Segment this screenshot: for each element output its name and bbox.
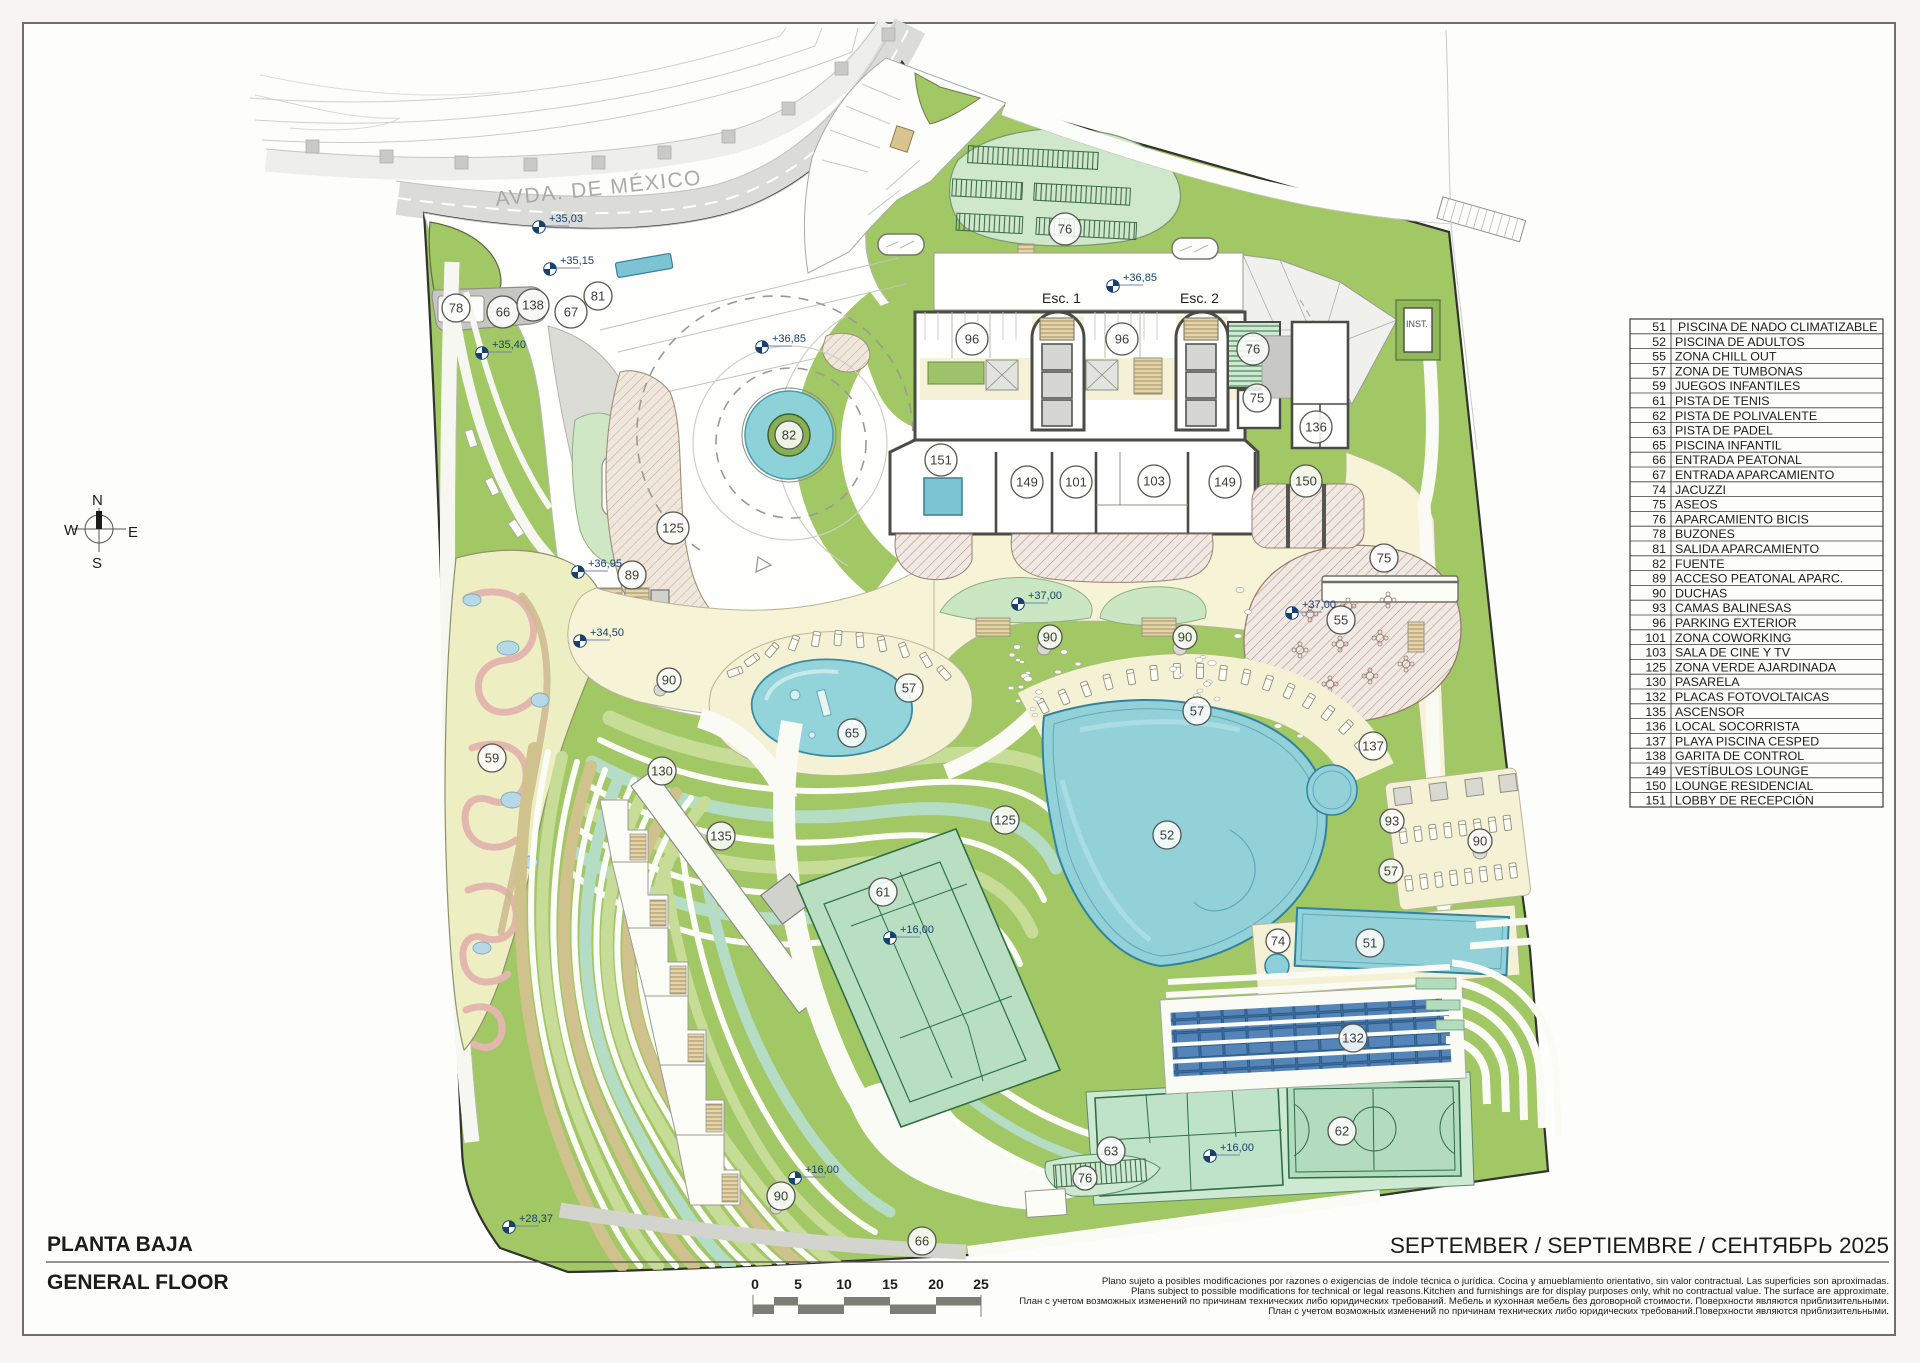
svg-text:LOCAL SOCORRISTA: LOCAL SOCORRISTA [1675, 720, 1800, 734]
svg-text:ZONA DE TUMBONAS: ZONA DE TUMBONAS [1675, 364, 1803, 378]
svg-text:15: 15 [882, 1276, 898, 1292]
svg-text:FUENTE: FUENTE [1675, 557, 1725, 571]
svg-text:+16,00: +16,00 [900, 924, 934, 936]
svg-text:74: 74 [1271, 934, 1285, 949]
svg-text:PISTA DE POLIVALENTE: PISTA DE POLIVALENTE [1675, 409, 1817, 423]
svg-text:Esc. 2: Esc. 2 [1180, 290, 1219, 306]
svg-text:125: 125 [662, 521, 684, 536]
svg-text:ZONA COWORKING: ZONA COWORKING [1675, 631, 1791, 645]
svg-text:ASEOS: ASEOS [1675, 498, 1718, 512]
svg-text:62: 62 [1335, 1124, 1349, 1139]
svg-text:LOBBY DE RECEPCIÓN: LOBBY DE RECEPCIÓN [1675, 793, 1814, 808]
svg-text:ACCESO PEATONAL APARC.: ACCESO PEATONAL APARC. [1675, 572, 1843, 586]
svg-text:SEPTEMBER / SEPTIEMBRE / СЕНТЯ: SEPTEMBER / SEPTIEMBRE / СЕНТЯБРЬ 2025 [1390, 1233, 1889, 1258]
svg-text:W: W [64, 522, 79, 539]
svg-text:25: 25 [973, 1276, 989, 1292]
svg-text:52: 52 [1652, 335, 1666, 349]
svg-text:67: 67 [564, 305, 578, 320]
svg-text:90: 90 [774, 1189, 788, 1204]
svg-text:52: 52 [1160, 828, 1174, 843]
svg-text:PISTA DE TENIS: PISTA DE TENIS [1675, 394, 1770, 408]
svg-text:78: 78 [1652, 527, 1666, 541]
svg-text:132: 132 [1342, 1031, 1364, 1046]
svg-text:+16,00: +16,00 [1220, 1142, 1254, 1154]
svg-text:90: 90 [1043, 630, 1057, 645]
svg-text:82: 82 [782, 428, 796, 443]
svg-text:101: 101 [1645, 631, 1666, 645]
svg-text:103: 103 [1143, 474, 1165, 489]
svg-text:151: 151 [1645, 794, 1666, 808]
svg-text:75: 75 [1652, 498, 1666, 512]
svg-text:136: 136 [1645, 720, 1666, 734]
svg-text:65: 65 [1652, 438, 1666, 452]
svg-text:+36,95: +36,95 [588, 558, 622, 570]
svg-text:PLACAS FOTOVOLTAICAS: PLACAS FOTOVOLTAICAS [1675, 690, 1829, 704]
svg-text:PLANTA BAJA: PLANTA BAJA [47, 1233, 193, 1256]
svg-text:55: 55 [1652, 350, 1666, 364]
svg-text:GENERAL FLOOR: GENERAL FLOOR [47, 1271, 229, 1294]
svg-text:89: 89 [1652, 572, 1666, 586]
svg-text:PISCINA DE NADO CLIMATIZABLE: PISCINA DE NADO CLIMATIZABLE [1678, 320, 1877, 334]
svg-text:59: 59 [1652, 379, 1666, 393]
svg-text:136: 136 [1305, 420, 1327, 435]
svg-text:ZONA CHILL OUT: ZONA CHILL OUT [1675, 350, 1777, 364]
svg-text:132: 132 [1645, 690, 1666, 704]
svg-text:E: E [128, 524, 138, 541]
svg-text:+28,37: +28,37 [519, 1213, 553, 1225]
svg-text:90: 90 [662, 673, 676, 688]
svg-text:PARKING EXTERIOR: PARKING EXTERIOR [1675, 616, 1797, 630]
svg-text:+36,85: +36,85 [772, 333, 806, 345]
svg-text:PISTA DE PADEL: PISTA DE PADEL [1675, 424, 1773, 438]
svg-text:137: 137 [1362, 739, 1384, 754]
svg-text:67: 67 [1652, 468, 1666, 482]
svg-text:+35,40: +35,40 [492, 339, 526, 351]
svg-text:96: 96 [965, 332, 979, 347]
svg-text:82: 82 [1652, 557, 1666, 571]
svg-text:55: 55 [1334, 613, 1348, 628]
svg-text:76: 76 [1078, 1171, 1092, 1186]
svg-text:125: 125 [1645, 660, 1666, 674]
svg-text:66: 66 [1652, 453, 1666, 467]
svg-text:20: 20 [928, 1276, 944, 1292]
svg-text:61: 61 [876, 885, 890, 900]
svg-text:BUZONES: BUZONES [1675, 527, 1735, 541]
svg-text:93: 93 [1652, 601, 1666, 615]
svg-text:+16,00: +16,00 [805, 1164, 839, 1176]
svg-text:103: 103 [1645, 646, 1666, 660]
svg-text:51: 51 [1652, 320, 1666, 334]
svg-text:96: 96 [1652, 616, 1666, 630]
svg-text:101: 101 [1065, 475, 1087, 490]
svg-text:90: 90 [1473, 834, 1487, 849]
svg-text:150: 150 [1295, 474, 1317, 489]
svg-text:+36,85: +36,85 [1123, 272, 1157, 284]
svg-text:78: 78 [449, 301, 463, 316]
svg-text:62: 62 [1652, 409, 1666, 423]
svg-text:57: 57 [1652, 364, 1666, 378]
svg-text:76: 76 [1058, 222, 1072, 237]
svg-text:76: 76 [1652, 512, 1666, 526]
svg-text:57: 57 [1190, 704, 1204, 719]
svg-text:149: 149 [1016, 475, 1038, 490]
svg-text:135: 135 [710, 829, 732, 844]
svg-text:10: 10 [836, 1276, 852, 1292]
svg-text:81: 81 [1652, 542, 1666, 556]
svg-text:90: 90 [1178, 630, 1192, 645]
svg-text:SALA DE CINE Y TV: SALA DE CINE Y TV [1675, 646, 1791, 660]
svg-text:66: 66 [496, 305, 510, 320]
svg-text:GARITA DE CONTROL: GARITA DE CONTROL [1675, 749, 1804, 763]
svg-text:81: 81 [591, 289, 605, 304]
svg-text:90: 90 [1652, 586, 1666, 600]
svg-text:ASCENSOR: ASCENSOR [1675, 705, 1745, 719]
svg-text:57: 57 [902, 681, 916, 696]
svg-text:61: 61 [1652, 394, 1666, 408]
svg-text:JUEGOS INFANTILES: JUEGOS INFANTILES [1675, 379, 1800, 393]
svg-text:57: 57 [1384, 864, 1398, 879]
svg-text:+37,00: +37,00 [1028, 590, 1062, 602]
svg-text:151: 151 [930, 453, 952, 468]
svg-text:ENTRADA APARCAMIENTO: ENTRADA APARCAMIENTO [1675, 468, 1835, 482]
svg-text:DUCHAS: DUCHAS [1675, 586, 1727, 600]
svg-text:N: N [92, 492, 103, 509]
svg-text:CAMAS BALINESAS: CAMAS BALINESAS [1675, 601, 1791, 615]
svg-text:0: 0 [751, 1276, 759, 1292]
svg-text:SALIDA APARCAMIENTO: SALIDA APARCAMIENTO [1675, 542, 1820, 556]
svg-text:PASARELA: PASARELA [1675, 675, 1740, 689]
svg-text:Esc. 1: Esc. 1 [1042, 290, 1081, 306]
svg-text:74: 74 [1652, 483, 1666, 497]
svg-text:66: 66 [915, 1234, 929, 1249]
svg-text:125: 125 [994, 813, 1016, 828]
svg-text:138: 138 [522, 298, 544, 313]
svg-text:137: 137 [1645, 734, 1666, 748]
svg-text:63: 63 [1652, 424, 1666, 438]
svg-text:+35,03: +35,03 [549, 213, 583, 225]
svg-text:89: 89 [625, 568, 639, 583]
svg-text:ENTRADA PEATONAL: ENTRADA PEATONAL [1675, 453, 1802, 467]
svg-text:PLAYA PISCINA CESPED: PLAYA PISCINA CESPED [1675, 734, 1819, 748]
svg-text:+34,50: +34,50 [590, 627, 624, 639]
svg-text:План с учетом возможных измене: План с учетом возможных изменений по при… [1268, 1306, 1889, 1317]
svg-text:75: 75 [1250, 391, 1264, 406]
svg-text:76: 76 [1246, 342, 1260, 357]
svg-text:INST.: INST. [1406, 319, 1428, 329]
svg-text:135: 135 [1645, 705, 1666, 719]
svg-text:+37,00: +37,00 [1302, 599, 1336, 611]
svg-text:96: 96 [1115, 332, 1129, 347]
svg-text:59: 59 [485, 751, 499, 766]
svg-text:5: 5 [794, 1276, 802, 1292]
svg-text:149: 149 [1214, 475, 1236, 490]
svg-text:ZONA VERDE AJARDINADA: ZONA VERDE AJARDINADA [1675, 660, 1837, 674]
svg-text:JACUZZI: JACUZZI [1675, 483, 1726, 497]
svg-text:138: 138 [1645, 749, 1666, 763]
svg-text:149: 149 [1645, 764, 1666, 778]
svg-text:S: S [92, 555, 102, 572]
svg-text:75: 75 [1377, 551, 1391, 566]
svg-text:APARCAMIENTO BICIS: APARCAMIENTO BICIS [1675, 512, 1809, 526]
svg-text:65: 65 [845, 726, 859, 741]
svg-text:51: 51 [1363, 936, 1377, 951]
svg-text:150: 150 [1645, 779, 1666, 793]
svg-text:+35,15: +35,15 [560, 255, 594, 267]
svg-text:VESTÍBULOS LOUNGE: VESTÍBULOS LOUNGE [1675, 763, 1809, 778]
svg-text:PISCINA DE ADULTOS: PISCINA DE ADULTOS [1675, 335, 1805, 349]
svg-text:130: 130 [1645, 675, 1666, 689]
svg-text:63: 63 [1104, 1144, 1118, 1159]
svg-text:130: 130 [651, 764, 673, 779]
svg-text:93: 93 [1385, 814, 1399, 829]
svg-text:PISCINA INFANTIL: PISCINA INFANTIL [1675, 438, 1782, 452]
svg-text:LOUNGE RESIDENCIAL: LOUNGE RESIDENCIAL [1675, 779, 1814, 793]
